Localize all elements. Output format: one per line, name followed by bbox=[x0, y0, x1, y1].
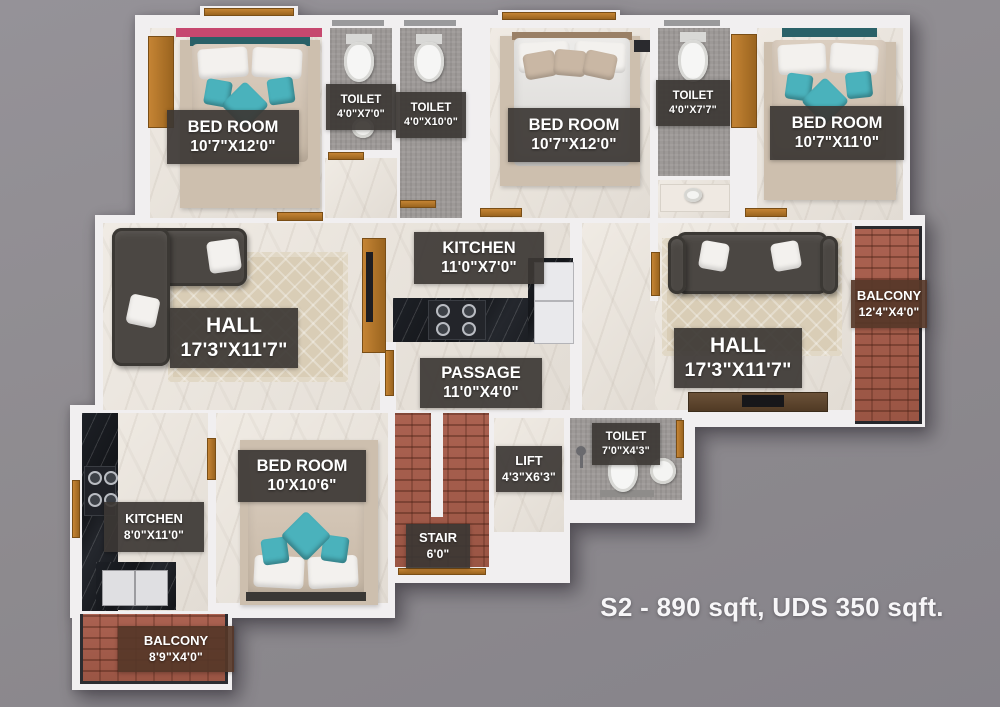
room-name: BED ROOM bbox=[508, 115, 640, 135]
door-passage bbox=[385, 350, 394, 396]
room-name: PASSAGE bbox=[420, 363, 542, 383]
room-dims: 10'7"X12'0" bbox=[508, 136, 640, 155]
toilet-fixture bbox=[344, 42, 374, 82]
room-label-balcony-bottom: BALCONY 8'9"X4'0" bbox=[118, 626, 234, 672]
room-label-kitchen-left: KITCHEN 8'0"X11'0" bbox=[104, 502, 204, 552]
room-dims: 17'3"X11'7" bbox=[674, 359, 802, 383]
room-label-toilet-bottom: TOILET 7'0"X4'3" bbox=[592, 423, 660, 465]
room-dims: 8'9"X4'0" bbox=[118, 650, 234, 665]
stair-divider bbox=[431, 413, 443, 517]
appliance-divider bbox=[134, 570, 136, 606]
door-bedroom-top-center bbox=[480, 208, 522, 217]
room-label-hall-right: HALL 17'3"X11'7" bbox=[674, 328, 802, 388]
room-label-toilet-top-right: TOILET 4'0"X7'7" bbox=[656, 80, 730, 126]
room-dims: 12'4"X4'0" bbox=[851, 305, 927, 320]
room-label-balcony-right: BALCONY 12'4"X4'0" bbox=[851, 280, 927, 328]
toilet-fixture bbox=[678, 40, 708, 82]
room-name: BED ROOM bbox=[770, 113, 904, 133]
room-name: HALL bbox=[674, 333, 802, 359]
throw-pillow bbox=[125, 293, 161, 329]
pillow bbox=[197, 46, 249, 79]
accent-wall-pink bbox=[176, 28, 322, 37]
headboard bbox=[782, 28, 877, 37]
room-label-bedroom-top-center: BED ROOM 10'7"X12'0" bbox=[508, 108, 640, 162]
pillow bbox=[251, 47, 303, 80]
room-name: BED ROOM bbox=[238, 456, 366, 476]
room-name: STAIR bbox=[406, 530, 470, 546]
window-bedroom-top-left bbox=[204, 8, 294, 16]
floor-lobby-below-toilet bbox=[325, 158, 397, 218]
vent-toilet-top-mid bbox=[404, 20, 456, 26]
room-dims: 10'7"X12'0" bbox=[167, 138, 299, 157]
stove-burner bbox=[104, 471, 118, 485]
pillow-teal bbox=[266, 76, 295, 105]
door-hall-right bbox=[651, 252, 660, 296]
floor-corridor-right bbox=[582, 223, 655, 410]
stove-burner bbox=[462, 304, 476, 318]
room-name: TOILET bbox=[592, 430, 660, 444]
room-label-bedroom-top-right: BED ROOM 10'7"X11'0" bbox=[770, 106, 904, 160]
room-label-passage: PASSAGE 11'0"X4'0" bbox=[420, 358, 542, 408]
room-dims: 4'0"X10'0" bbox=[396, 116, 466, 129]
room-label-stair: STAIR 6'0" bbox=[406, 524, 470, 568]
door-toilet-bottom bbox=[676, 420, 684, 458]
room-label-lift: LIFT 4'3"X6'3" bbox=[496, 446, 562, 492]
pillow-beige bbox=[522, 49, 558, 80]
floor-plan-canvas: BED ROOM 10'7"X12'0" TOILET 4'0"X7'0" TO… bbox=[0, 0, 1000, 707]
room-dims: 10'X10'6" bbox=[238, 477, 366, 496]
toilet-fixture bbox=[414, 42, 444, 82]
stove-burner bbox=[88, 471, 102, 485]
room-dims: 4'0"X7'0" bbox=[326, 108, 396, 121]
stove-burner bbox=[436, 322, 450, 336]
shower-stem bbox=[580, 455, 583, 468]
sofa-arm bbox=[820, 236, 838, 294]
pillow bbox=[829, 42, 879, 75]
pillow-teal bbox=[845, 71, 874, 100]
room-name: BALCONY bbox=[118, 633, 234, 649]
room-label-bedroom-bottom: BED ROOM 10'X10'6" bbox=[238, 450, 366, 502]
room-dims: 7'0"X4'3" bbox=[592, 445, 660, 458]
room-name: TOILET bbox=[396, 101, 466, 115]
pillow-beige bbox=[553, 49, 587, 78]
room-name: BALCONY bbox=[851, 288, 927, 304]
plan-caption: S2 - 890 sqft, UDS 350 sqft. bbox=[596, 592, 948, 626]
room-dims: 11'0"X7'0" bbox=[414, 259, 544, 278]
door-toilet-top-mid bbox=[400, 200, 436, 208]
room-dims: 4'0"X7'7" bbox=[656, 104, 730, 117]
room-dims: 4'3"X6'3" bbox=[496, 470, 562, 485]
stove-burner bbox=[436, 304, 450, 318]
vent-toilet-top-right bbox=[664, 20, 720, 26]
fridge-divider bbox=[534, 300, 574, 302]
wardrobe-bedroom-top-right bbox=[731, 34, 757, 128]
window-kitchen-left bbox=[72, 480, 80, 538]
door-bedroom-top-right bbox=[745, 208, 787, 217]
door-bedroom-top-left bbox=[277, 212, 323, 221]
stair-landing-strip bbox=[398, 568, 486, 575]
room-name: KITCHEN bbox=[104, 511, 204, 527]
room-name: LIFT bbox=[496, 453, 562, 469]
sofa-arm bbox=[668, 236, 686, 294]
room-label-kitchen-center: KITCHEN 11'0"X7'0" bbox=[414, 232, 544, 284]
door-bedroom-bottom bbox=[207, 438, 216, 480]
throw-pillow bbox=[698, 240, 730, 272]
window-bedroom-top-center bbox=[502, 12, 616, 20]
throw-pillow bbox=[206, 238, 242, 274]
pillow bbox=[777, 43, 827, 75]
room-name: HALL bbox=[170, 313, 298, 339]
room-dims: 17'3"X11'7" bbox=[170, 339, 298, 363]
throw-pillow bbox=[770, 240, 802, 272]
footboard bbox=[246, 592, 366, 601]
room-dims: 11'0"X4'0" bbox=[420, 384, 542, 403]
room-name: TOILET bbox=[326, 93, 396, 107]
vent-toilet-top-left bbox=[332, 20, 384, 26]
room-label-toilet-top-left: TOILET 4'0"X7'0" bbox=[326, 84, 396, 130]
room-dims: 10'7"X11'0" bbox=[770, 134, 904, 153]
tv-screen bbox=[366, 252, 373, 322]
stove-burner bbox=[88, 493, 102, 507]
tv-screen bbox=[742, 395, 784, 407]
room-label-bedroom-top-left: BED ROOM 10'7"X12'0" bbox=[167, 110, 299, 164]
room-name: KITCHEN bbox=[414, 238, 544, 258]
sink-fixture bbox=[684, 188, 702, 202]
wall-switch bbox=[634, 40, 650, 52]
room-dims: 8'0"X11'0" bbox=[104, 528, 204, 543]
door-toilet-top-left bbox=[328, 152, 364, 160]
room-label-toilet-top-mid: TOILET 4'0"X10'0" bbox=[396, 92, 466, 138]
room-dims: 6'0" bbox=[406, 547, 470, 562]
stove-burner bbox=[462, 322, 476, 336]
room-name: TOILET bbox=[656, 89, 730, 103]
room-label-hall-left: HALL 17'3"X11'7" bbox=[170, 308, 298, 368]
room-name: BED ROOM bbox=[167, 117, 299, 137]
